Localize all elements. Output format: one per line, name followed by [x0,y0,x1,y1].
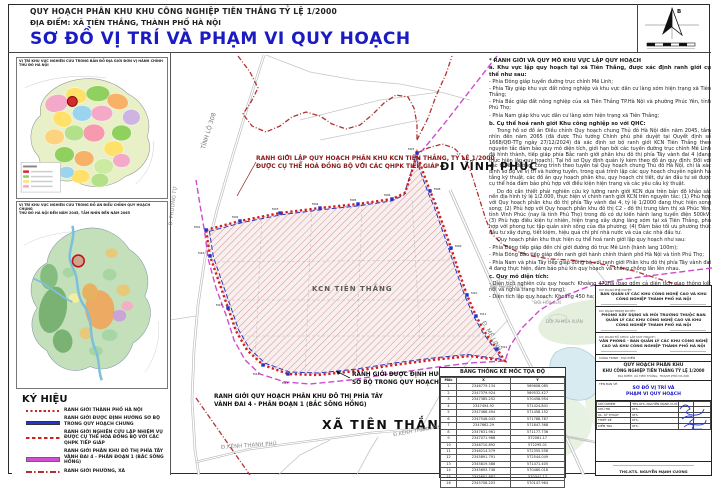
legend-label: RANH GIỚI PHÂN KHU ĐÔ THỊ PHÍA TÂY VÀNH … [64,449,170,466]
drawing-name-line2: PHẠM VI QUY HOẠCH [599,392,708,398]
svg-text:M08: M08 [434,187,440,191]
svg-text:M06: M06 [384,193,390,197]
project-label: CÔNG TRÌNH - ĐỊA ĐIỂM [599,356,708,360]
coordinate-table-title: BẢNG THỐNG KÊ MỐC TỌA ĐỘ [440,368,565,377]
inset-map-administrative: VỊ TRÍ KHU VỰC NGHIÊN CỨU TRONG BẢN ĐỒ Đ… [16,57,168,199]
svg-text:M05: M05 [350,198,356,202]
inset2-title-line1: VỊ TRÍ KHU VỰC NGHIÊN CỨU TRONG ĐỒ ÁN ĐI… [19,203,150,211]
signature-scribbles [676,401,710,431]
callout-lap-quy-hoach: RANH GIỚI LẬP QUY HOẠCH PHÂN KHU KCN TIÊ… [256,155,495,171]
inset-map-master-plan: VỊ TRÍ KHU VỰC NGHIÊN CỨU TRONG ĐỒ ÁN ĐI… [16,201,168,389]
svg-text:M12: M12 [501,345,507,349]
notes-item: - Phía Nam và phía Tây tiếp giáp đồng bộ… [489,261,711,273]
inset2-title-line2: THỦ ĐÔ HÀ NỘI ĐẾN NĂM 2045, TẦM NHÌN ĐẾN… [19,211,130,215]
legend-label: RANH GIỚI NGHIÊN CỨU LẬP NHIỆM VỤ ĐƯỢC C… [64,430,170,447]
submitting-agency-name: PHÒNG XÂY DỰNG VÀ MÔI TRƯỜNG THUỘC BAN Q… [599,313,708,328]
callout-lap-quy-hoach-line1: RANH GIỚI LẬP QUY HOẠCH PHÂN KHU KCN TIÊ… [256,155,495,163]
legend-item-qhc-orientation: RANH GIỚI ĐƯỢC ĐỊNH HƯỚNG SƠ BỘ TRONG QU… [26,416,170,427]
approver-section: THS.KTS. NGUYỄN MẠNH CƯỜNG [596,462,711,475]
notes-body: Trong hồ sơ đồ án Điều chỉnh Quy hoạch c… [489,129,711,188]
notes-panel: * RANH GIỚI VÀ QUY MÔ KHU VỰC LẬP QUY HO… [489,56,711,303]
notes-item: - Phía Đông tiếp giáp đến chỉ giới đường… [489,246,711,252]
legend-swatch-red-dotted [26,408,60,414]
organizing-agency-name: VĂN PHÒNG - BAN QUẢN LÝ CÁC KHU CÔNG NGH… [599,339,708,349]
signature-line-row [599,304,708,305]
legend-swatch-darkred-dashdot [26,469,60,475]
svg-text:M01: M01 [194,225,200,229]
signature-table-section: CHỦ NHIỆMTHS.KTS. NGUYỄN MẠNH CƯỜNGCHỦ T… [596,401,711,462]
legend-swatch-blue-line [26,419,60,425]
legend-item-vanh-dai-4: RANH GIỚI PHÂN KHU ĐÔ THỊ PHÍA TÂY VÀNH … [26,449,170,466]
notes-item: - Phía Đông Bắc tiếp giáp đến ranh giới … [489,253,711,259]
header-line1: QUY HOẠCH PHÂN KHU KHU CÔNG NGHIỆP TIÊN … [30,7,590,16]
coordinate-rows: 12346779.134569608.08522347379.924569532… [441,384,565,487]
legend-swatch-red-dashed [26,435,60,441]
approving-agency-name: BAN QUẢN LÝ CÁC KHU CÔNG NGHỆ CAO VÀ KHU… [599,292,708,302]
svg-text:M13: M13 [282,381,288,385]
page-title: SƠ ĐỒ VỊ TRÍ VÀ PHẠM VI QUY HOẠCH [30,29,590,49]
inset2-title: VỊ TRÍ KHU VỰC NGHIÊN CỨU TRONG ĐỒ ÁN ĐI… [17,202,167,216]
inset2-map-graphic [17,216,167,388]
notes-heading: * RANH GIỚI VÀ QUY MÔ KHU VỰC LẬP QUY HO… [489,58,711,64]
notes-body: Quy hoạch phân khu thực hiện cụ thể hoá … [489,238,711,244]
svg-text:M14: M14 [253,372,259,376]
notes-item: - Phía Bắc giáp đất nông nghiệp của xã T… [489,100,711,112]
inset1-map-graphic [17,68,167,196]
header-line2: ĐỊA ĐIỂM: XÃ TIÊN THẮNG, THÀNH PHỐ HÀ NỘ… [30,18,590,27]
project-section: QUY HOẠCH PHÂN KHU KHU CÔNG NGHIỆP TIÊN … [596,362,711,381]
scale-bar [647,43,695,49]
svg-text:M15: M15 [216,303,222,307]
svg-text:M10: M10 [471,291,477,295]
svg-text:M09: M09 [455,244,461,248]
callout-vanh-dai-4-line1: RANH GIỚI QUY HOẠCH PHÂN KHU ĐÔ THỊ PHÍA… [214,394,383,402]
inset1-title: VỊ TRÍ KHU VỰC NGHIÊN CỨU TRONG BẢN ĐỒ Đ… [17,58,167,68]
study-area-marker-1 [67,97,77,107]
legend-item-study-boundary: RANH GIỚI NGHIÊN CỨU LẬP NHIỆM VỤ ĐƯỢC C… [26,430,170,447]
kcn-site-area [206,153,505,375]
svg-text:M07: M07 [408,147,414,151]
compass-divider [637,4,638,52]
project-label-row: CÔNG TRÌNH - ĐỊA ĐIỂM [596,355,711,362]
notes-sub-c: c. Quy mô diện tích: [489,274,711,280]
inset1-mini-legend [21,163,60,193]
notes-sub-a: a. Khu vực lập quy hoạch tại xã Tiên Thắ… [489,65,711,78]
approver-name: THS.KTS. NGUYỄN MẠNH CƯỜNG [599,470,708,474]
legend: KÝ HIỆU RANH GIỚI THÀNH PHỐ HÀ NỘI RANH … [12,392,170,476]
signature-line-row [599,351,708,352]
title-block: CƠ QUAN PHÊ DUYỆT: BAN QUẢN LÝ CÁC KHU C… [595,285,712,476]
svg-text:M11: M11 [480,312,486,316]
coordinate-table: BẢNG THỐNG KÊ MỐC TỌA ĐỘ Mốc X Y 1234677… [439,367,566,478]
svg-text:M04: M04 [312,202,318,206]
approver-line [613,465,694,466]
inset1-title-line2: THỦ ĐÔ HÀ NỘI [19,63,49,67]
north-arrow-dark-half [662,8,672,35]
header-divider [8,52,711,53]
callout-lap-quy-hoach-line2: ĐƯỢC CỤ THỂ HOÁ ĐỒNG BỘ VỚI CÁC QHPK TIẾ… [256,163,495,171]
callout-vanh-dai-4: RANH GIỚI QUY HOẠCH PHÂN KHU ĐÔ THỊ PHÍA… [214,394,383,410]
legend-item-city-boundary: RANH GIỚI THÀNH PHỐ HÀ NỘI [26,408,170,414]
sidebar-divider [170,52,171,475]
callout-vanh-dai-4-line2: VÀNH ĐAI 4 - PHÂN ĐOẠN 1 (BẮC SÔNG HỒNG) [214,402,383,410]
legend-swatch-magenta-line [26,455,60,461]
notes-item: - Phía Tây giáp khu vực đất nông nghiệp … [489,87,711,99]
project-location: ĐỊA ĐIỂM: XÃ TIÊN THẮNG, THÀNH PHỐ HÀ NỘ… [599,374,708,378]
drawing-name-section: TÊN BẢN VẼ: SƠ ĐỒ VỊ TRÍ VÀ PHẠM VI QUY … [596,381,711,401]
svg-text:M03: M03 [272,207,278,211]
notes-sub-b: b. Cụ thể hoá ranh giới Khu công nghiệp … [489,121,711,127]
legend-label: RANH GIỚI THÀNH PHỐ HÀ NỘI [64,408,170,414]
legend-item-commune-boundary: RANH GIỚI PHƯỜNG, XÃ [26,469,170,475]
sheet-header: QUY HOẠCH PHÂN KHU KHU CÔNG NGHIỆP TIÊN … [30,7,590,49]
legend-title: KÝ HIỆU [22,394,170,405]
drawing-name: SƠ ĐỒ VỊ TRÍ VÀ PHẠM VI QUY HOẠCH [599,386,708,398]
north-letter: B [677,9,681,15]
svg-text:M16: M16 [198,251,204,255]
organizing-agency-section: CƠ QUAN TỔ CHỨC LẬP QUY HOẠCH: VĂN PHÒNG… [596,333,711,354]
signature-line-row [599,330,708,331]
notes-item: - Phía Nam giáp khu vực dân cư làng xóm … [489,114,711,120]
approving-agency-section: CƠ QUAN PHÊ DUYỆT: BAN QUẢN LÝ CÁC KHU C… [596,286,711,307]
project-name-line2: KHU CÔNG NGHIỆP TIÊN THẮNG TỶ LỆ 1/2000 [599,368,708,373]
svg-text:M02: M02 [232,215,238,219]
legend-label: RANH GIỚI ĐƯỢC ĐỊNH HƯỚNG SƠ BỘ TRONG QU… [64,416,170,427]
north-arrow: B [641,5,703,51]
notes-body: Do đó cần thiết phải nghiên cứu kỹ lưỡng… [489,190,711,237]
legend-label: RANH GIỚI PHƯỜNG, XÃ [64,469,170,475]
notes-item: - Phía Đông giáp tuyến đường trục chính … [489,80,711,86]
study-area-marker-2 [72,255,84,267]
submitting-agency-section: CƠ QUAN TRÌNH DUYỆT: PHÒNG XÂY DỰNG VÀ M… [596,307,711,333]
